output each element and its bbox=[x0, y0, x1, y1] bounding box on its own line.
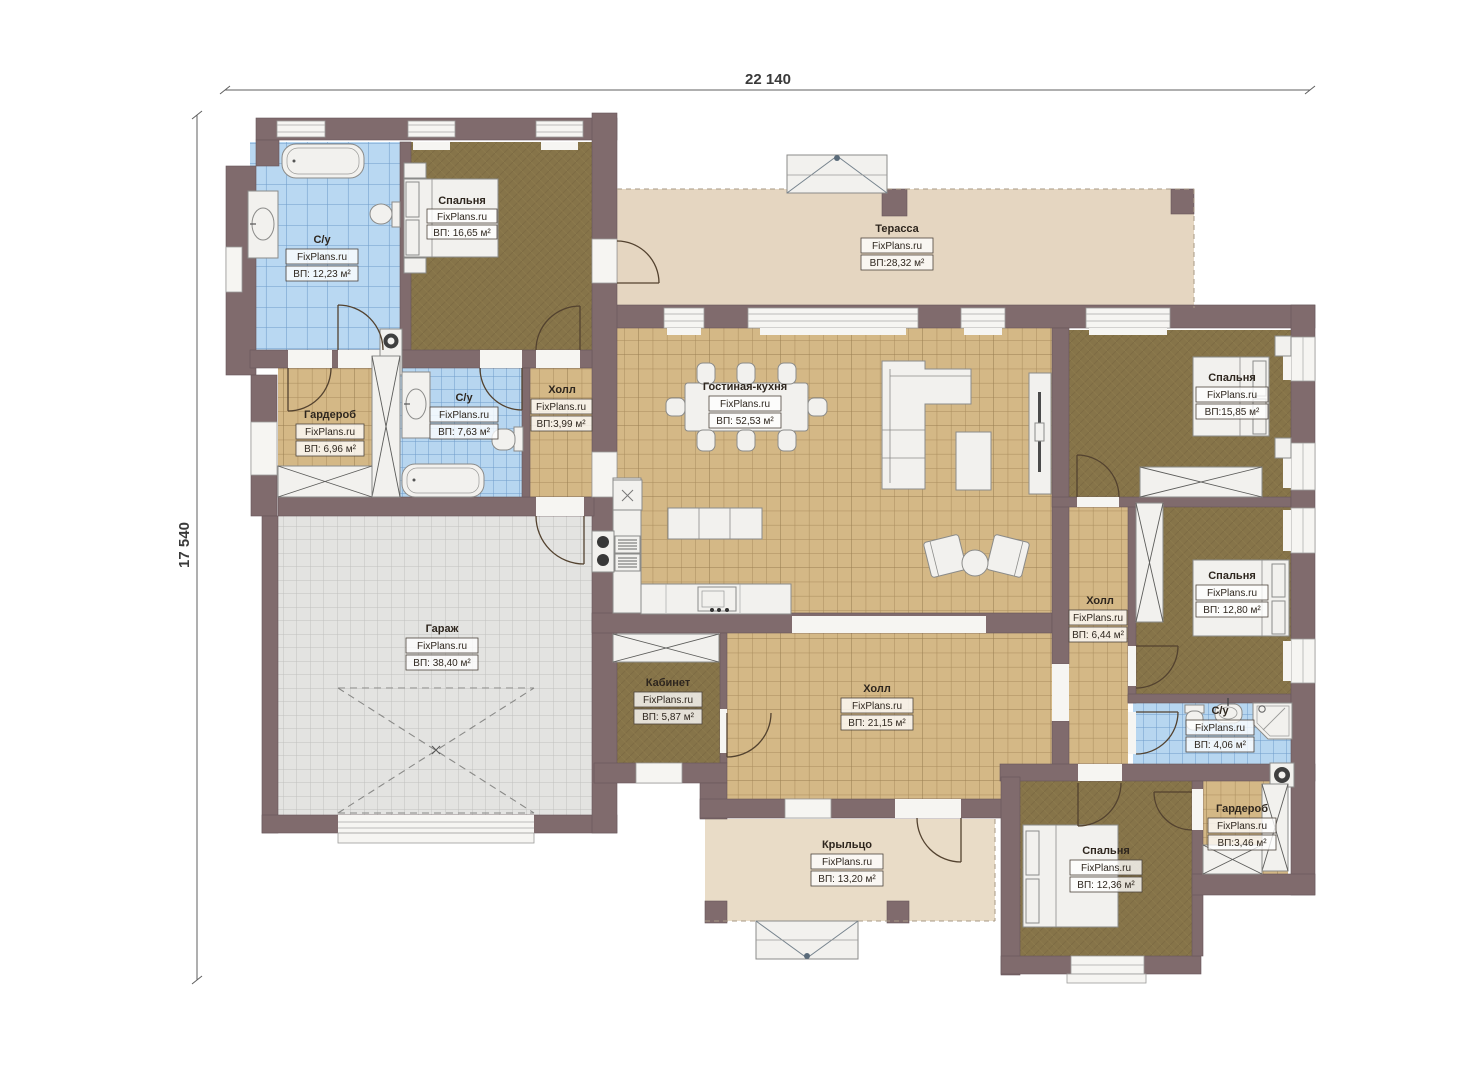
svg-text:FixPlans.ru: FixPlans.ru bbox=[439, 410, 489, 421]
svg-text:FixPlans.ru: FixPlans.ru bbox=[437, 212, 487, 223]
svg-text:FixPlans.ru: FixPlans.ru bbox=[1207, 588, 1257, 599]
svg-text:ВП: 4,06 м²: ВП: 4,06 м² bbox=[1194, 740, 1247, 751]
svg-text:ВП:3,99 м²: ВП:3,99 м² bbox=[536, 419, 586, 430]
svg-text:FixPlans.ru: FixPlans.ru bbox=[536, 402, 586, 413]
svg-text:С/у: С/у bbox=[1211, 705, 1229, 717]
svg-text:17 540: 17 540 bbox=[176, 522, 193, 568]
svg-text:Холл: Холл bbox=[548, 384, 576, 396]
svg-text:FixPlans.ru: FixPlans.ru bbox=[1217, 821, 1267, 832]
svg-text:22 140: 22 140 bbox=[745, 71, 791, 88]
svg-text:С/у: С/у bbox=[455, 392, 473, 404]
svg-text:FixPlans.ru: FixPlans.ru bbox=[852, 701, 902, 712]
svg-text:Гостиная-кухня: Гостиная-кухня bbox=[703, 381, 787, 393]
svg-text:Гардероб: Гардероб bbox=[1216, 803, 1268, 815]
svg-text:ВП: 5,87 м²: ВП: 5,87 м² bbox=[642, 712, 695, 723]
svg-text:FixPlans.ru: FixPlans.ru bbox=[1073, 613, 1123, 624]
svg-text:Холл: Холл bbox=[1086, 595, 1114, 607]
svg-text:FixPlans.ru: FixPlans.ru bbox=[1195, 723, 1245, 734]
svg-text:FixPlans.ru: FixPlans.ru bbox=[417, 641, 467, 652]
svg-text:ВП: 38,40 м²: ВП: 38,40 м² bbox=[413, 658, 471, 669]
svg-text:Кабинет: Кабинет bbox=[646, 677, 691, 689]
svg-text:ВП: 7,63 м²: ВП: 7,63 м² bbox=[438, 427, 491, 438]
svg-text:FixPlans.ru: FixPlans.ru bbox=[297, 252, 347, 263]
svg-text:FixPlans.ru: FixPlans.ru bbox=[305, 427, 355, 438]
svg-text:FixPlans.ru: FixPlans.ru bbox=[1207, 390, 1257, 401]
svg-text:ВП: 21,15 м²: ВП: 21,15 м² bbox=[848, 718, 906, 729]
svg-text:Гардероб: Гардероб bbox=[304, 409, 356, 421]
svg-text:ВП:15,85 м²: ВП:15,85 м² bbox=[1205, 407, 1260, 418]
svg-text:ВП:3,46 м²: ВП:3,46 м² bbox=[1217, 838, 1267, 849]
svg-text:FixPlans.ru: FixPlans.ru bbox=[1081, 863, 1131, 874]
svg-text:С/у: С/у bbox=[313, 234, 331, 246]
svg-text:ВП: 12,80 м²: ВП: 12,80 м² bbox=[1203, 605, 1261, 616]
svg-text:Спальня: Спальня bbox=[1208, 372, 1256, 384]
svg-text:ВП: 6,44 м²: ВП: 6,44 м² bbox=[1072, 630, 1125, 641]
svg-text:ВП: 6,96 м²: ВП: 6,96 м² bbox=[304, 444, 357, 455]
svg-text:FixPlans.ru: FixPlans.ru bbox=[720, 399, 770, 410]
svg-text:Холл: Холл bbox=[863, 683, 891, 695]
svg-text:ВП: 52,53 м²: ВП: 52,53 м² bbox=[716, 416, 774, 427]
svg-text:Гараж: Гараж bbox=[426, 623, 459, 635]
svg-text:ВП: 16,65 м²: ВП: 16,65 м² bbox=[433, 228, 491, 239]
svg-text:FixPlans.ru: FixPlans.ru bbox=[822, 857, 872, 868]
svg-text:ВП: 13,20 м²: ВП: 13,20 м² bbox=[818, 874, 876, 885]
svg-text:Терасса: Терасса bbox=[875, 223, 919, 235]
svg-text:Крыльцо: Крыльцо bbox=[822, 839, 872, 851]
svg-text:ВП:28,32 м²: ВП:28,32 м² bbox=[870, 258, 925, 269]
svg-text:Спальня: Спальня bbox=[1082, 845, 1130, 857]
svg-text:ВП: 12,36 м²: ВП: 12,36 м² bbox=[1077, 880, 1135, 891]
svg-text:FixPlans.ru: FixPlans.ru bbox=[872, 241, 922, 252]
svg-text:Спальня: Спальня bbox=[1208, 570, 1256, 582]
svg-text:ВП: 12,23 м²: ВП: 12,23 м² bbox=[293, 269, 351, 280]
svg-text:FixPlans.ru: FixPlans.ru bbox=[643, 695, 693, 706]
svg-text:Спальня: Спальня bbox=[438, 195, 486, 207]
